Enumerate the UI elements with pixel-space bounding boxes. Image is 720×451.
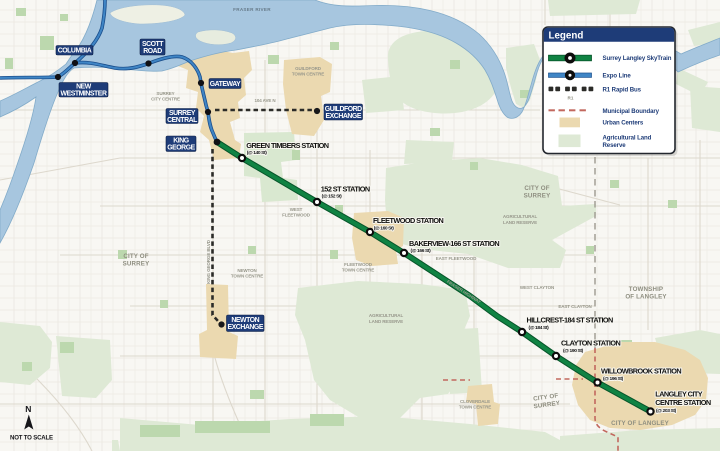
svg-text:GUILDFORD: GUILDFORD bbox=[325, 106, 362, 113]
svg-text:152 ST STATION: 152 ST STATION bbox=[321, 185, 370, 194]
svg-text:Municipal Boundary: Municipal Boundary bbox=[603, 108, 660, 115]
svg-text:SCOTT: SCOTT bbox=[142, 41, 164, 48]
svg-text:Reserve: Reserve bbox=[603, 142, 627, 149]
svg-text:COLUMBIA: COLUMBIA bbox=[58, 48, 92, 55]
svg-text:EXCHANGE: EXCHANGE bbox=[326, 113, 362, 120]
svg-text:SURREY: SURREY bbox=[524, 193, 551, 200]
svg-text:GEORGE: GEORGE bbox=[167, 145, 195, 152]
svg-text:CENTRAL: CENTRAL bbox=[167, 117, 197, 124]
svg-text:R1: R1 bbox=[568, 96, 574, 101]
svg-text:LAND RESERVE: LAND RESERVE bbox=[503, 220, 537, 225]
svg-text:WESTMINSTER: WESTMINSTER bbox=[61, 91, 107, 98]
svg-text:FRASER RIVER: FRASER RIVER bbox=[233, 7, 271, 12]
svg-text:CITY OF: CITY OF bbox=[123, 253, 148, 260]
svg-text:CLOVERDALE: CLOVERDALE bbox=[460, 399, 490, 404]
svg-text:OF LANGLEY: OF LANGLEY bbox=[625, 294, 667, 301]
svg-text:N: N bbox=[25, 404, 31, 414]
svg-text:(@ 166 St): (@ 166 St) bbox=[411, 248, 432, 254]
svg-text:HILLCREST-184 ST STATION: HILLCREST-184 ST STATION bbox=[527, 316, 614, 325]
svg-text:AGRICULTURAL: AGRICULTURAL bbox=[503, 214, 538, 219]
svg-text:LAND RESERVE: LAND RESERVE bbox=[369, 319, 403, 324]
svg-text:Legend: Legend bbox=[549, 31, 584, 42]
svg-text:KING: KING bbox=[173, 138, 189, 145]
svg-text:NEWTON: NEWTON bbox=[237, 268, 256, 273]
svg-text:(@ 160 St): (@ 160 St) bbox=[374, 225, 395, 231]
svg-text:SURREY: SURREY bbox=[156, 91, 174, 96]
svg-text:AGRICULTURAL: AGRICULTURAL bbox=[369, 313, 404, 318]
svg-text:TOWNSHIP: TOWNSHIP bbox=[629, 286, 663, 293]
svg-text:NEW: NEW bbox=[76, 84, 92, 91]
svg-text:SURREY: SURREY bbox=[123, 261, 150, 268]
svg-text:ROAD: ROAD bbox=[143, 48, 162, 55]
svg-text:WEST CLAYTON: WEST CLAYTON bbox=[520, 285, 554, 290]
svg-text:CENTRE STATION: CENTRE STATION bbox=[655, 398, 711, 407]
svg-text:(@ 152 St): (@ 152 St) bbox=[322, 193, 343, 199]
svg-text:CITY OF: CITY OF bbox=[524, 185, 549, 192]
svg-text:104 AVE N: 104 AVE N bbox=[254, 98, 275, 103]
svg-text:BAKERVIEW-166 ST STATION: BAKERVIEW-166 ST STATION bbox=[409, 239, 499, 248]
svg-text:FLEETWOOD STATION: FLEETWOOD STATION bbox=[373, 216, 444, 225]
svg-text:GATEWAY: GATEWAY bbox=[210, 81, 241, 88]
svg-text:Expo Line: Expo Line bbox=[603, 72, 632, 79]
svg-text:CITY OF LANGLEY: CITY OF LANGLEY bbox=[611, 420, 670, 427]
svg-text:(@ 184 St): (@ 184 St) bbox=[529, 325, 550, 331]
svg-text:NOT TO SCALE: NOT TO SCALE bbox=[10, 435, 53, 442]
svg-text:EAST FLEETWOOD: EAST FLEETWOOD bbox=[436, 256, 477, 261]
svg-text:TOWN CENTRE: TOWN CENTRE bbox=[342, 268, 374, 273]
svg-text:EXCHANGE: EXCHANGE bbox=[228, 324, 264, 331]
svg-text:(@ 190 St): (@ 190 St) bbox=[563, 348, 584, 354]
svg-text:R1 Rapid Bus: R1 Rapid Bus bbox=[603, 86, 642, 93]
svg-text:CLAYTON STATION: CLAYTON STATION bbox=[561, 339, 620, 348]
svg-text:TOWN CENTRE: TOWN CENTRE bbox=[231, 274, 263, 279]
svg-text:Surrey Langley SkyTrain: Surrey Langley SkyTrain bbox=[603, 55, 672, 62]
svg-text:GUILDFORD: GUILDFORD bbox=[295, 66, 322, 71]
svg-text:NEWTON: NEWTON bbox=[231, 317, 259, 324]
svg-text:Agricultural Land: Agricultural Land bbox=[603, 135, 652, 142]
svg-text:CITY CENTRE: CITY CENTRE bbox=[151, 97, 180, 102]
svg-text:FLEETWOOD: FLEETWOOD bbox=[282, 213, 311, 218]
svg-text:EAST CLAYTON: EAST CLAYTON bbox=[558, 304, 591, 309]
svg-text:TOWN CENTRE: TOWN CENTRE bbox=[292, 72, 324, 77]
svg-text:WEST: WEST bbox=[290, 207, 303, 212]
svg-text:WILLOWBROOK STATION: WILLOWBROOK STATION bbox=[601, 367, 681, 376]
svg-text:Urban Centers: Urban Centers bbox=[603, 120, 644, 127]
svg-text:(@ 203 St): (@ 203 St) bbox=[656, 408, 677, 414]
svg-text:(@ 140 St): (@ 140 St) bbox=[247, 150, 268, 156]
svg-text:SURREY: SURREY bbox=[169, 110, 196, 117]
svg-text:FLEETWOOD: FLEETWOOD bbox=[344, 262, 373, 267]
svg-text:GREEN TIMBERS STATION: GREEN TIMBERS STATION bbox=[246, 141, 329, 150]
svg-text:TOWN CENTRE: TOWN CENTRE bbox=[459, 405, 491, 410]
svg-text:(@ 196 St): (@ 196 St) bbox=[603, 376, 624, 382]
svg-text:KING GEORGE BLVD: KING GEORGE BLVD bbox=[206, 239, 211, 284]
